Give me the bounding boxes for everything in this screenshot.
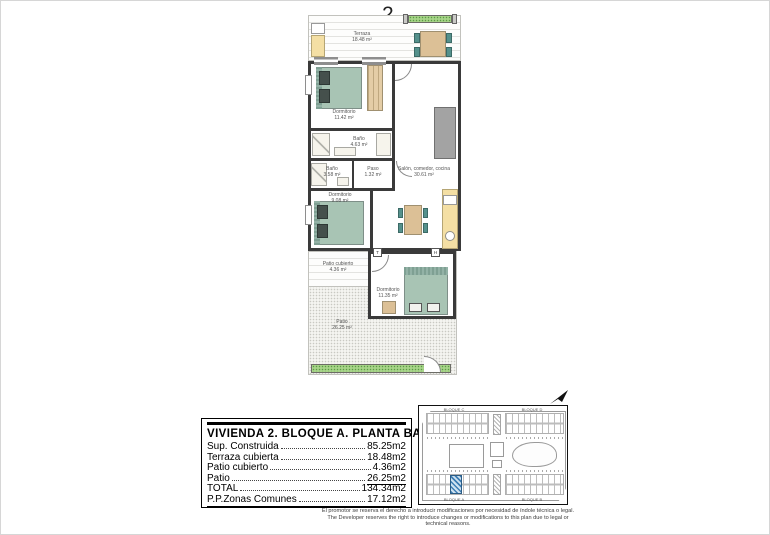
block-label-d: BLOQUE D <box>515 407 549 412</box>
toilet <box>337 177 349 186</box>
interior-wall <box>308 188 394 191</box>
pillow <box>317 205 328 219</box>
sliding-door <box>362 57 386 65</box>
block-label-b: BLOQUE B <box>515 497 549 502</box>
interior-wall <box>308 158 394 161</box>
common-area <box>449 444 484 468</box>
sliding-door <box>314 57 338 65</box>
highlighted-unit <box>450 475 462 494</box>
block-label-a: BLOQUE A <box>437 497 471 502</box>
dining-chair <box>423 208 428 218</box>
terrace-table <box>420 31 446 57</box>
table-row: Patio26.25m2 <box>207 473 406 484</box>
pool <box>512 442 557 467</box>
room-label-patio-cubierto: Patio cubierto4.36 m² <box>316 261 360 273</box>
common-building <box>490 442 504 457</box>
common-building <box>492 460 502 468</box>
terrace-cabinet <box>311 35 325 57</box>
summary-table: VIVIENDA 2. BLOQUE A. PLANTA BAJA Sup. C… <box>201 418 412 508</box>
unit-numbers <box>506 470 563 472</box>
terrace-cabinet-white <box>311 23 325 34</box>
room-label-bano2: Baño3.58 m² <box>318 166 346 178</box>
dining-chair <box>398 223 403 233</box>
table-row: Terraza cubierta18.48m2 <box>207 452 406 463</box>
unit-row <box>505 413 564 434</box>
site-plan: BLOQUE C BLOQUE D BLOQUE A BLOQUE B <box>418 405 568 505</box>
nightstand <box>382 301 396 314</box>
table-row: TOTAL134.34m2 <box>207 483 406 494</box>
room-label-salon: Salón, comedor, cocina30.61 m² <box>398 166 450 178</box>
table-row: Sup. Construida85.25m2 <box>207 441 406 452</box>
unit-numbers <box>427 437 488 439</box>
table-rule-top <box>207 422 406 425</box>
interior-wall <box>352 161 354 188</box>
unit-row <box>505 474 564 495</box>
terrace-chair <box>446 33 452 43</box>
pillow <box>409 303 422 312</box>
window <box>305 205 312 225</box>
disclaimer-line-en: The Developer reserves the right to intr… <box>319 515 577 528</box>
walkway <box>493 474 501 495</box>
pillow <box>319 89 330 103</box>
terrace-chair <box>446 47 452 57</box>
bed-headboard <box>404 267 448 275</box>
dining-chair <box>423 223 428 233</box>
utility-box-h: H <box>431 248 440 257</box>
dining-table <box>404 205 422 235</box>
room-label-terraza: Terraza18.48 m² <box>342 31 382 43</box>
unit-numbers <box>506 437 563 439</box>
room-label-dormitorio3: Dormitorio11.35 m² <box>372 287 404 299</box>
unit-numbers <box>427 470 488 472</box>
window <box>305 75 312 95</box>
pillow <box>317 224 328 238</box>
table-title: VIVIENDA 2. BLOQUE A. PLANTA BAJA <box>207 427 406 441</box>
terrace-chair <box>414 33 420 43</box>
block-label-c: BLOQUE C <box>437 407 471 412</box>
bathroom-sink <box>334 147 356 156</box>
planter-top <box>408 15 452 23</box>
pillow <box>319 71 330 85</box>
unit-row <box>426 413 489 434</box>
planter-endcap <box>452 14 457 24</box>
kitchen-appliance <box>443 195 457 205</box>
utility-box-t: T <box>373 248 382 257</box>
interior-wall <box>370 191 373 251</box>
plan-sheet: 2 Terraza18.48 m² Patio26.25 m² Patio cu… <box>0 0 770 535</box>
room-label-bano1: Baño4.63 m² <box>344 136 374 148</box>
room-label-paso: Paso1.32 m² <box>360 166 386 178</box>
planter-endcap <box>403 14 408 24</box>
disclaimer: El promotor se reserva el derecho a intr… <box>319 508 577 528</box>
room-label-dormitorio1: Dormitorio11.42 m² <box>322 109 366 121</box>
table-row: Patio cubierto4.36m2 <box>207 462 406 473</box>
interior-wall <box>308 128 394 131</box>
north-arrow-icon <box>549 389 569 405</box>
dining-chair <box>398 208 403 218</box>
room-label-patio: Patio26.25 m² <box>322 319 362 331</box>
bathtub <box>376 133 391 156</box>
pillow <box>427 303 440 312</box>
walkway <box>493 414 501 435</box>
table-row: P.P.Zonas Comunes17.12m2 <box>207 494 406 505</box>
shower <box>312 133 330 156</box>
floor-plan: 2 Terraza18.48 m² Patio26.25 m² Patio cu… <box>304 9 464 379</box>
disclaimer-line-es: El promotor se reserva el derecho a intr… <box>319 508 577 515</box>
room-label-dormitorio2: Dormitorio9.08 m² <box>318 192 362 204</box>
sofa <box>434 107 456 159</box>
wardrobe <box>367 65 383 111</box>
kitchen-sink <box>445 231 455 241</box>
terrace-chair <box>414 47 420 57</box>
